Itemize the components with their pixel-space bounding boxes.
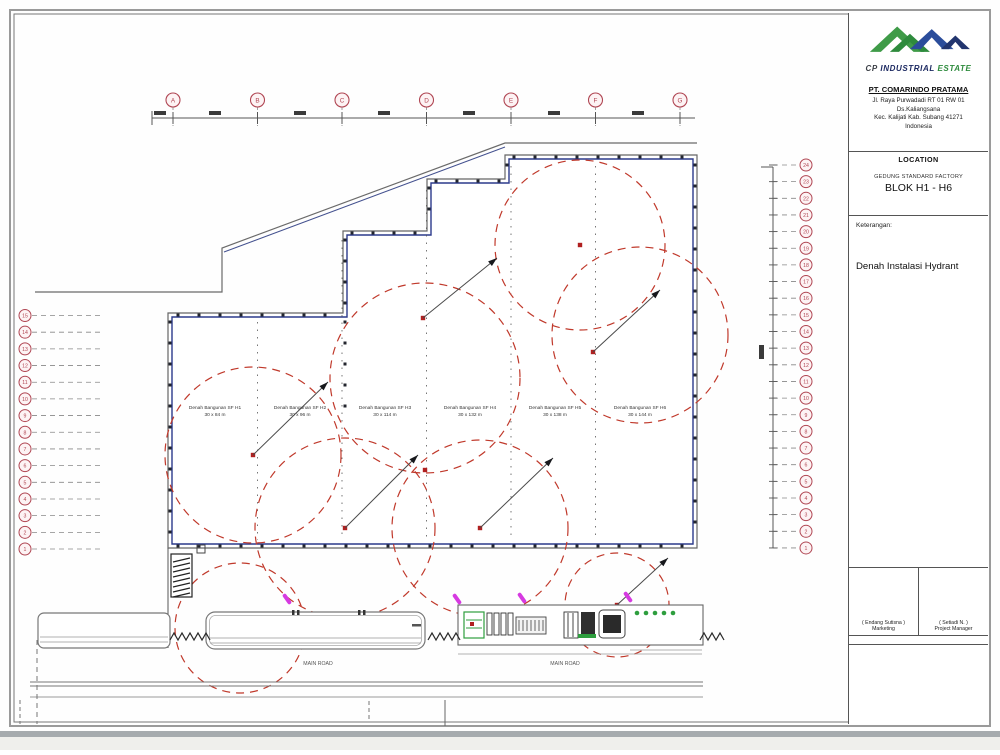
top-grid-label: E: [509, 97, 513, 104]
right-grid-label: 22: [803, 196, 809, 202]
notes-label: Keterangan:: [856, 222, 982, 229]
right-grid-label: 2: [805, 529, 808, 535]
road-island: [38, 613, 170, 648]
left-grid-label: 12: [22, 364, 28, 370]
drawing-title: Denah Instalasi Hydrant: [856, 261, 982, 272]
hydrant-pillar-marker: [517, 592, 527, 604]
valve-dot: [653, 611, 658, 616]
company-name: PT. COMARINDO PRATAMA: [849, 85, 988, 94]
company-address-line: Jl. Raya Purwadadi RT 01 RW 01: [849, 97, 988, 106]
hydrant-pillar-marker: [452, 593, 462, 605]
right-grid-label: 5: [805, 479, 808, 485]
top-grid-label: D: [424, 97, 429, 104]
building-size: 30 x 96 m: [289, 412, 310, 418]
location-header: LOCATION: [849, 155, 988, 164]
right-grid-label: 21: [803, 213, 809, 219]
building-size: 30 x 114 m: [373, 412, 396, 418]
right-grid-label: 18: [803, 263, 809, 269]
left-grid-label: 13: [22, 347, 28, 353]
right-grid-label: 23: [803, 180, 809, 186]
right-grid-label: 14: [803, 330, 809, 336]
building-label: Denah Bangunan SF H5: [529, 405, 582, 411]
notes-section: Keterangan: Denah Instalasi Hydrant: [849, 215, 988, 567]
signature-role: Project Manager: [919, 626, 988, 632]
right-grid-label: 12: [803, 363, 809, 369]
brand-industrial: INDUSTRIAL: [880, 64, 934, 73]
left-grid-label: 2: [24, 530, 27, 536]
main-road-label: MAIN ROAD: [303, 661, 333, 667]
building-label: Denah Bangunan SF H4: [444, 405, 497, 411]
drawing-sheet: ABCDEFG151413121110987654321242322212019…: [0, 0, 1000, 750]
top-grid-label: A: [171, 97, 176, 104]
valve-dot: [671, 611, 676, 616]
building-size: 30 x 84 m: [204, 412, 225, 418]
valve-dot: [662, 611, 667, 616]
signature-section: ( Endang Sutisna ) Marketing ( Setiadi N…: [849, 567, 988, 635]
left-grid-label: 14: [22, 330, 28, 336]
title-block-empty-box: [849, 644, 988, 716]
right-grid-label: 3: [805, 513, 808, 519]
right-grid-label: 19: [803, 246, 809, 252]
company-logo: CP INDUSTRIAL ESTATE: [849, 13, 988, 85]
building-label: Denah Bangunan SF H6: [614, 405, 667, 411]
right-grid-label: 8: [805, 429, 808, 435]
water-tank: [603, 615, 621, 633]
fence-symbol: [170, 633, 210, 640]
right-grid-label: 10: [803, 396, 809, 402]
brand-name: CP INDUSTRIAL ESTATE: [849, 64, 988, 73]
fence-symbol: [700, 633, 724, 640]
right-grid-label: 16: [803, 296, 809, 302]
valve-dot: [644, 611, 649, 616]
building-label: Denah Bangunan SF H2: [274, 405, 327, 411]
building-size: 30 x 132 m: [458, 412, 482, 418]
building-label: Denah Bangunan SF H3: [359, 405, 412, 411]
left-grid-label: 11: [22, 380, 27, 386]
left-grid: [19, 310, 100, 556]
building-size: 30 x 138 m: [543, 412, 567, 418]
road-island: [206, 612, 425, 649]
building-label: Denah Bangunan SF H1: [189, 405, 242, 411]
company-address-line: Ds.Kaliangsana: [849, 106, 988, 115]
right-grid-label: 17: [803, 280, 809, 286]
right-grid-label: 6: [805, 463, 808, 469]
company-info: PT. COMARINDO PRATAMA Jl. Raya Purwadadi…: [849, 85, 988, 151]
company-address-line: Indonesia: [849, 123, 988, 132]
fence-symbol: [428, 633, 460, 640]
building-size: 30 x 144 m: [628, 412, 652, 418]
company-address-line: Kec. Kalijati Kab. Subang 41271: [849, 114, 988, 123]
right-grid-label: 1: [805, 546, 808, 552]
signature-marketing: ( Endang Sutisna ) Marketing: [849, 568, 918, 635]
top-grid-label: B: [255, 97, 259, 104]
hydrant-point: [578, 243, 582, 247]
right-grid-label: 7: [805, 446, 808, 452]
top-grid-label: C: [340, 97, 345, 104]
left-grid-label: 5: [24, 480, 27, 486]
title-block-spacer-row: [849, 635, 988, 644]
building-outline: [168, 155, 697, 548]
left-grid-label: 15: [22, 314, 28, 320]
main-road-label: MAIN ROAD: [550, 661, 580, 667]
right-grid-label: 24: [803, 163, 809, 169]
left-grid-label: 1: [24, 547, 27, 553]
roof-logo-icon: [857, 21, 981, 61]
left-grid-label: 4: [24, 497, 27, 503]
signature-project-manager: ( Setiadi N. ) Project Manager: [918, 568, 988, 635]
location-block: BLOK H1 - H6: [849, 182, 988, 194]
left-grid-label: 3: [24, 514, 27, 520]
right-grid-label: 9: [805, 413, 808, 419]
location-building: GEDUNG STANDARD FACTORY: [849, 174, 988, 180]
paper-edge-light: [0, 737, 1000, 750]
left-grid-label: 10: [22, 397, 28, 403]
hydrant-point: [423, 468, 427, 472]
left-grid-label: 6: [24, 464, 27, 470]
paper-edge-shadow: [0, 731, 1000, 737]
left-grid-label: 9: [24, 414, 27, 420]
title-block: CP INDUSTRIAL ESTATE PT. COMARINDO PRATA…: [848, 13, 988, 724]
right-grid-label: 4: [805, 496, 808, 502]
left-grid-label: 7: [24, 447, 27, 453]
top-grid-label: G: [678, 97, 683, 104]
left-grid-label: 8: [24, 430, 27, 436]
top-grid-label: F: [594, 97, 598, 104]
brand-estate: ESTATE: [938, 64, 972, 73]
right-grid-label: 15: [803, 313, 809, 319]
right-grid-label: 11: [803, 379, 808, 385]
hydrant-pillar-marker: [623, 591, 633, 603]
right-grid-label: 20: [803, 230, 809, 236]
signature-role: Marketing: [849, 626, 918, 632]
right-grid-label: 13: [803, 346, 809, 352]
valve-dot: [635, 611, 640, 616]
location-section: LOCATION GEDUNG STANDARD FACTORY BLOK H1…: [849, 151, 988, 215]
brand-cp: CP: [866, 64, 878, 73]
site-bottom: [20, 545, 724, 726]
